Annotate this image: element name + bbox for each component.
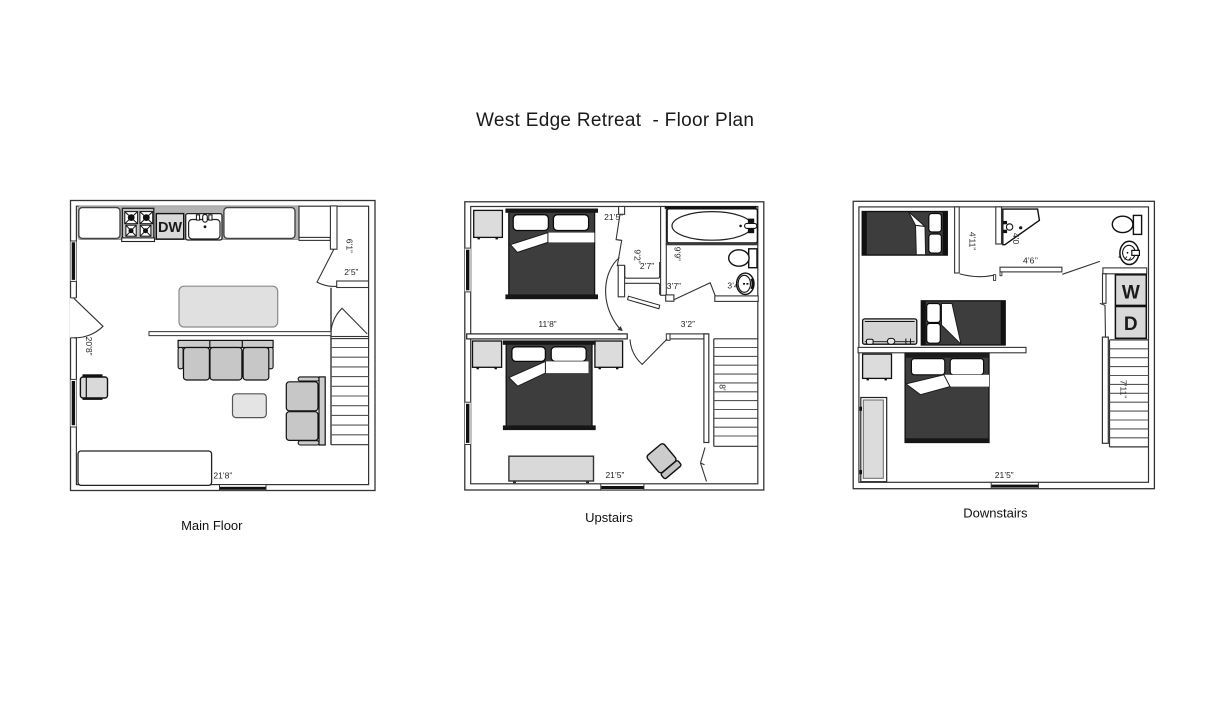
svg-text:4’6’’: 4’6’’ (1023, 256, 1038, 266)
svg-text:6’1”: 6’1” (344, 239, 354, 253)
svg-text:8’: 8’ (718, 384, 728, 391)
svg-text:Downstairs: Downstairs (963, 505, 1028, 520)
svg-text:2’5”: 2’5” (344, 267, 358, 277)
svg-text:21’5”: 21’5” (995, 470, 1014, 480)
svg-text:11’8”: 11’8” (538, 319, 556, 329)
svg-text:Main Floor: Main Floor (181, 518, 243, 533)
svg-text:7’11”: 7’11” (1119, 380, 1129, 398)
svg-text:4’11”: 4’11” (968, 232, 978, 250)
svg-text:West Edge Retreat - Floor Pla: West Edge Retreat - Floor Plan (476, 110, 754, 131)
svg-text:3’2”: 3’2” (681, 319, 695, 329)
svg-text:4’0: 4’0 (1011, 233, 1021, 245)
svg-text:Upstairs: Upstairs (585, 510, 633, 525)
svg-text:9’9”: 9’9” (672, 247, 682, 261)
svg-text:21’8”: 21’8” (213, 471, 232, 481)
svg-text:W: W (1122, 282, 1140, 303)
svg-text:DW: DW (158, 220, 182, 236)
svg-text:20’8”: 20’8” (84, 337, 94, 356)
svg-text:D: D (1124, 314, 1138, 335)
svg-text:2’7”: 2’7” (640, 261, 654, 271)
svg-text:3’7”: 3’7” (667, 281, 681, 291)
svg-text:21’5”: 21’5” (605, 470, 624, 480)
